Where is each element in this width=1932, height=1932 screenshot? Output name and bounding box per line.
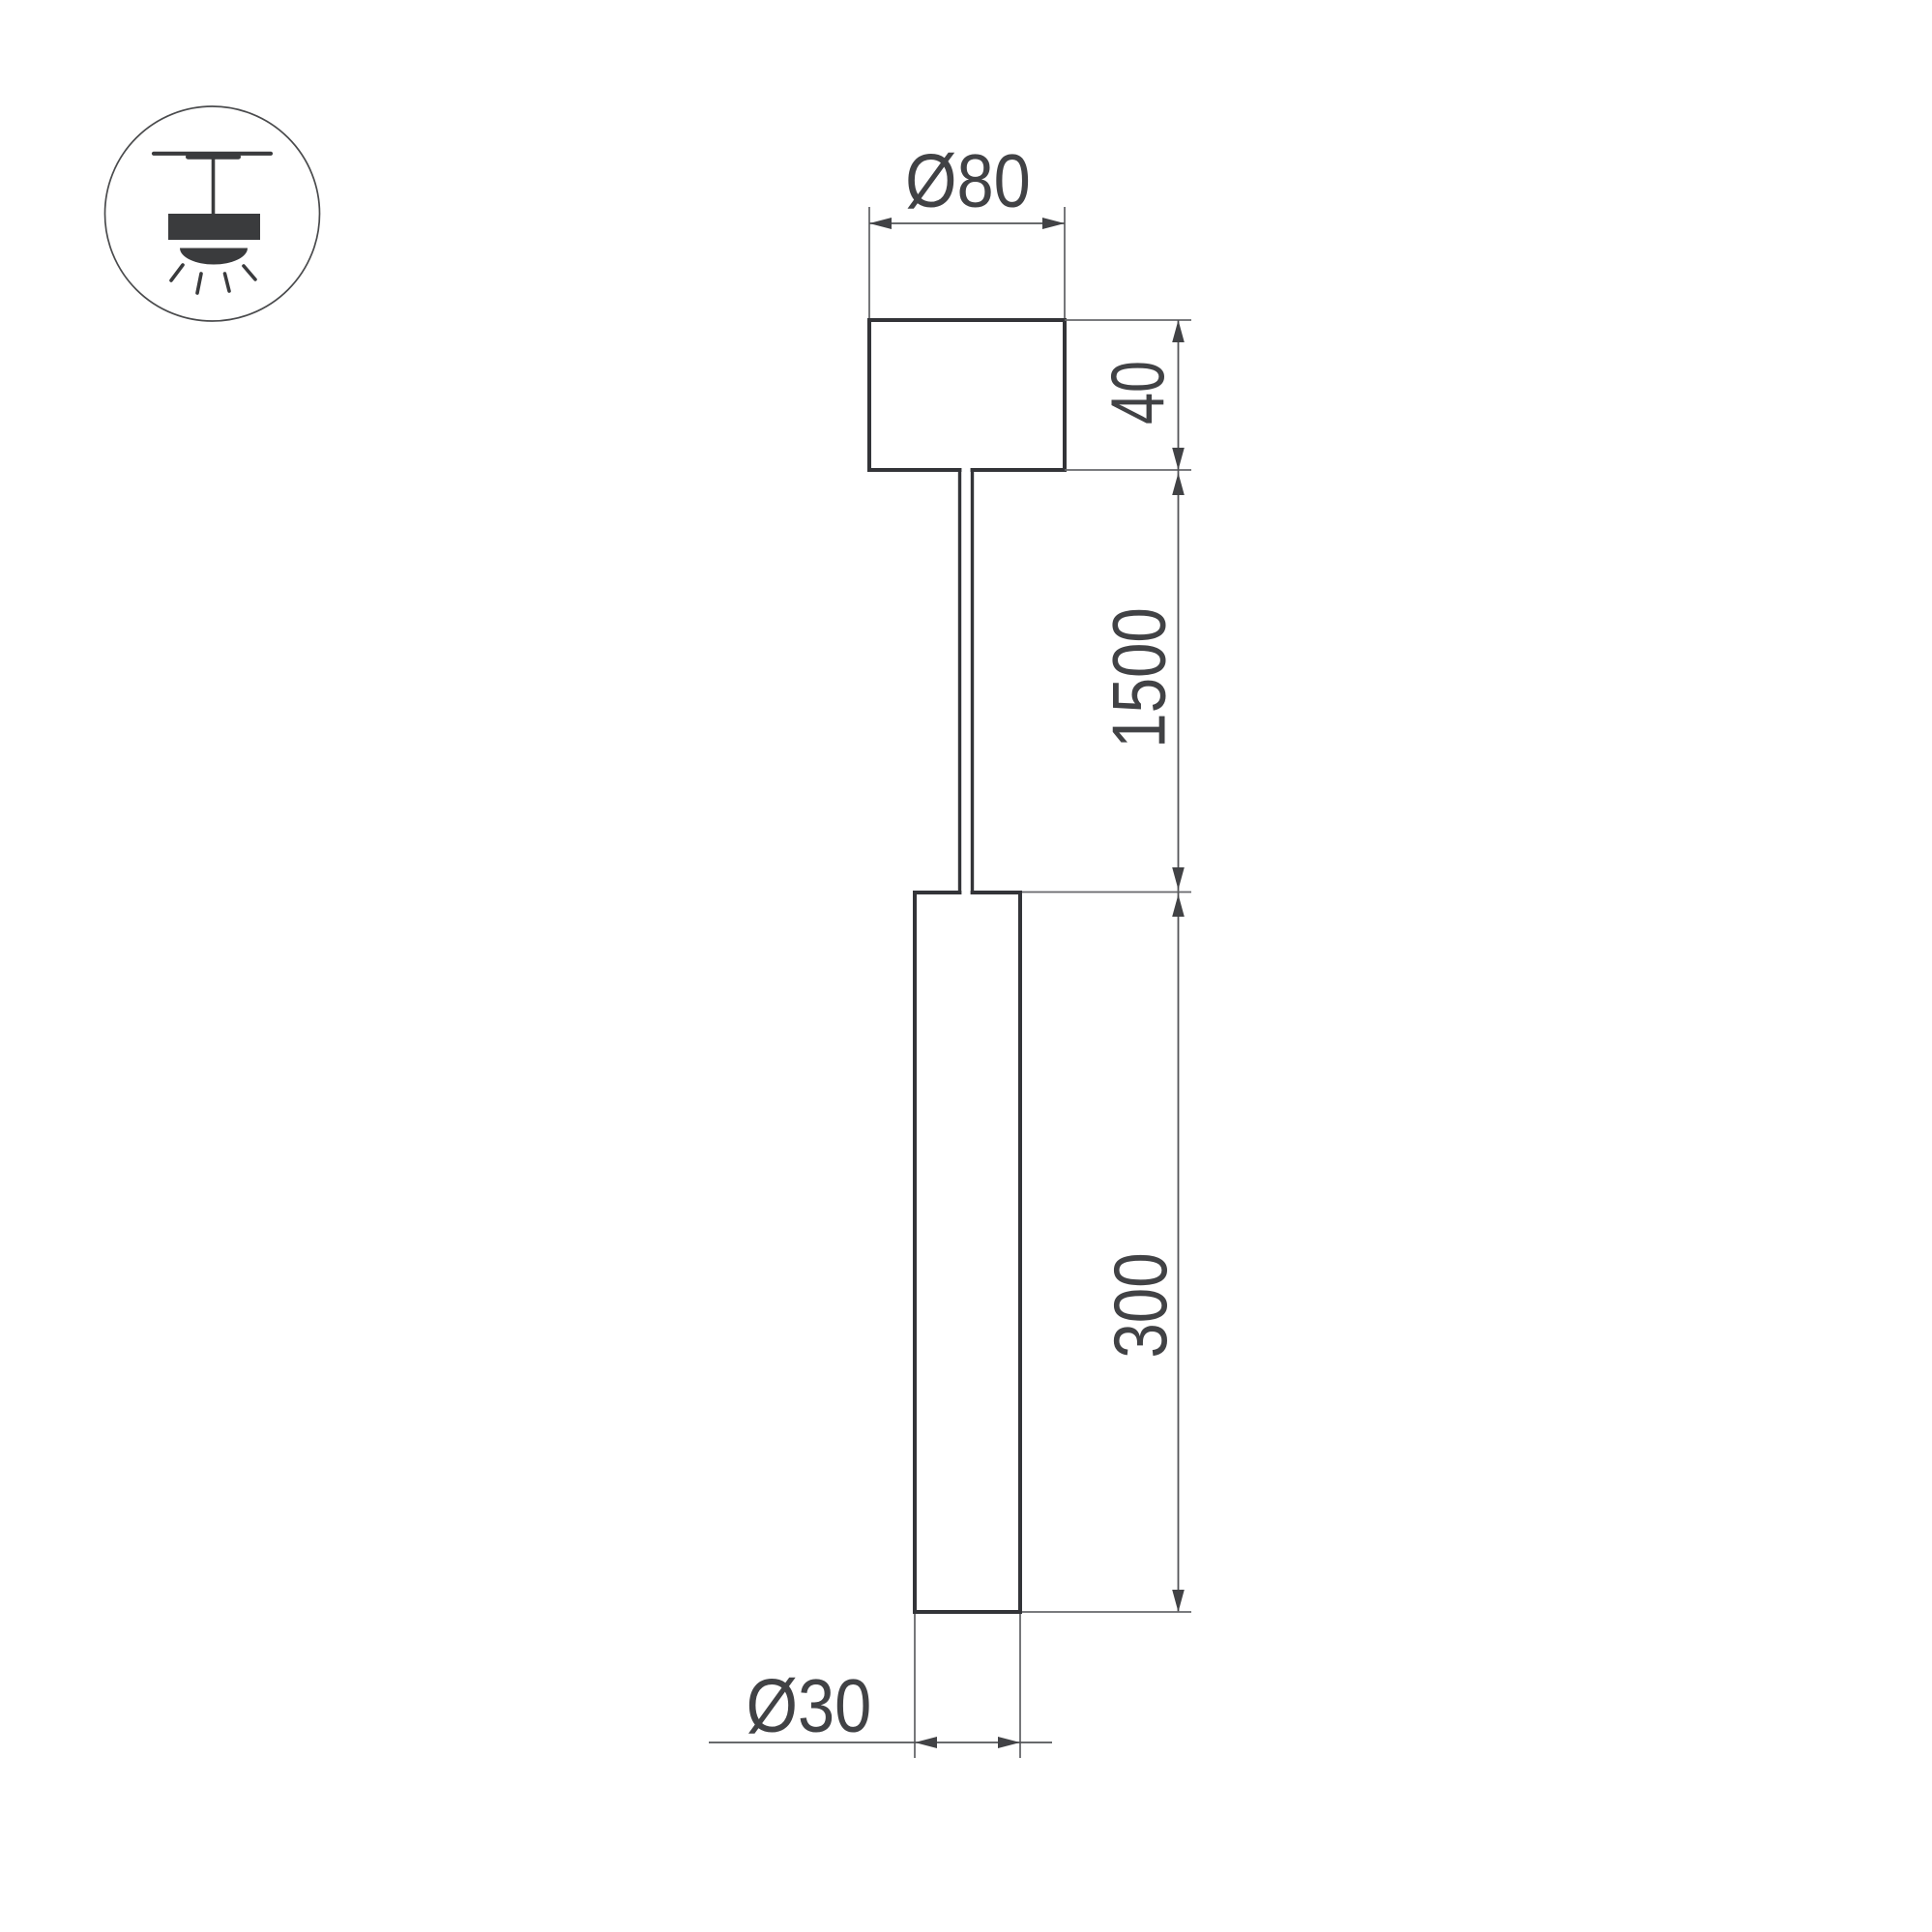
svg-text:40: 40 — [1095, 361, 1180, 424]
svg-text:300: 300 — [1099, 1252, 1184, 1358]
svg-text:1500: 1500 — [1098, 607, 1182, 748]
svg-text:Ø80: Ø80 — [905, 137, 1031, 222]
svg-text:Ø30: Ø30 — [746, 1662, 872, 1747]
